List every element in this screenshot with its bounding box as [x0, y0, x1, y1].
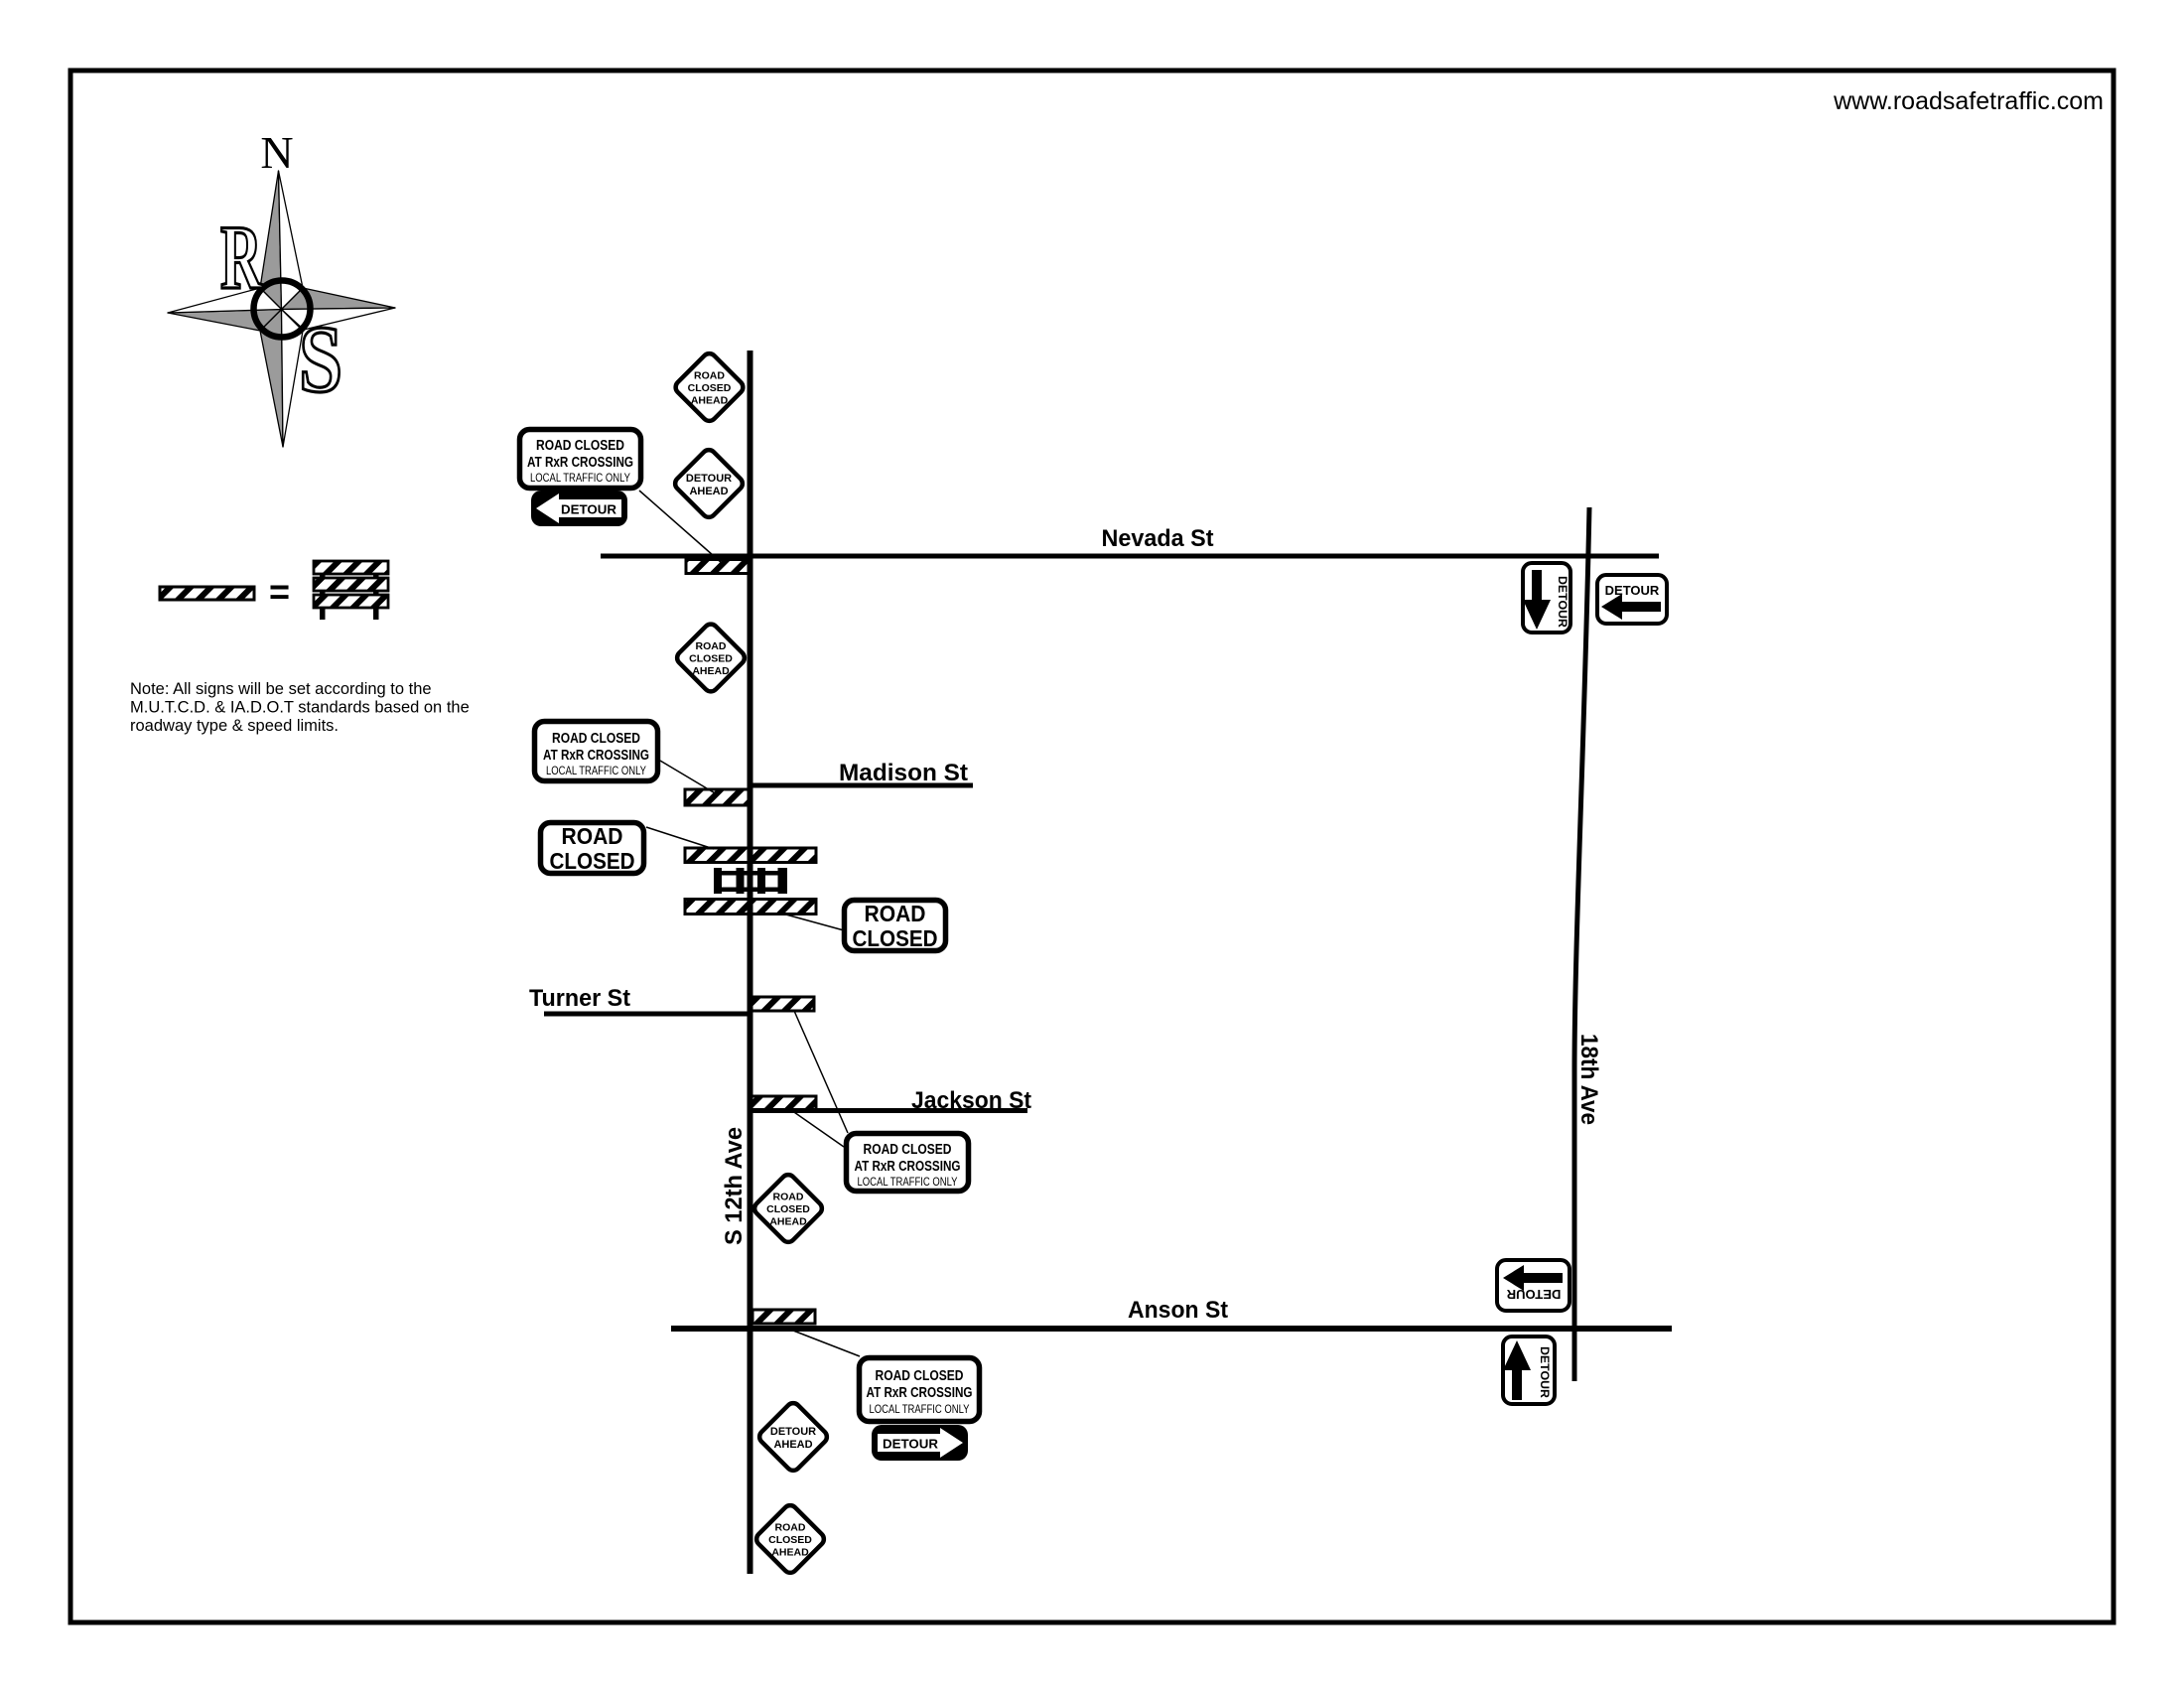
- svg-text:N: N: [260, 127, 293, 178]
- svg-text:ROAD: ROAD: [696, 640, 727, 652]
- svg-text:CLOSED: CLOSED: [853, 925, 938, 951]
- svg-text:=: =: [269, 571, 290, 612]
- svg-text:LOCAL TRAFFIC ONLY: LOCAL TRAFFIC ONLY: [870, 1404, 970, 1416]
- svg-text:ROAD CLOSED: ROAD CLOSED: [536, 438, 624, 454]
- svg-text:ROAD: ROAD: [694, 370, 725, 382]
- svg-text:CLOSED: CLOSED: [550, 848, 635, 874]
- svg-text:AHEAD: AHEAD: [689, 486, 728, 497]
- svg-text:roadway type & speed limits.: roadway type & speed limits.: [130, 717, 339, 735]
- svg-text:S 12th Ave: S 12th Ave: [721, 1127, 748, 1245]
- svg-text:Note: All signs will be set ac: Note: All signs will be set according to…: [130, 680, 432, 698]
- svg-text:LOCAL TRAFFIC ONLY: LOCAL TRAFFIC ONLY: [546, 766, 646, 777]
- svg-text:AHEAD: AHEAD: [691, 395, 729, 407]
- svg-text:CLOSED: CLOSED: [766, 1203, 810, 1215]
- svg-text:AT RxR CROSSING: AT RxR CROSSING: [527, 455, 633, 471]
- svg-text:LOCAL TRAFFIC ONLY: LOCAL TRAFFIC ONLY: [858, 1177, 958, 1189]
- svg-text:ROAD: ROAD: [773, 1192, 804, 1203]
- svg-text:AHEAD: AHEAD: [769, 1216, 807, 1228]
- svg-text:AT RxR CROSSING: AT RxR CROSSING: [867, 1385, 973, 1401]
- svg-text:ROAD: ROAD: [775, 1522, 806, 1534]
- svg-text:DETOUR: DETOUR: [770, 1426, 816, 1438]
- svg-text:DETOUR: DETOUR: [561, 502, 617, 517]
- svg-text:R: R: [220, 207, 263, 308]
- svg-text:DETOUR: DETOUR: [686, 473, 732, 485]
- svg-text:DETOUR: DETOUR: [883, 1437, 939, 1452]
- svg-text:ROAD CLOSED: ROAD CLOSED: [864, 1142, 952, 1158]
- svg-text:Turner St: Turner St: [529, 985, 630, 1012]
- svg-text:LOCAL TRAFFIC ONLY: LOCAL TRAFFIC ONLY: [530, 473, 630, 485]
- svg-text:Madison St: Madison St: [839, 760, 968, 786]
- svg-text:AHEAD: AHEAD: [692, 665, 730, 677]
- svg-text:AHEAD: AHEAD: [773, 1439, 812, 1451]
- svg-text:ROAD CLOSED: ROAD CLOSED: [552, 731, 640, 747]
- svg-text:CLOSED: CLOSED: [689, 653, 733, 665]
- svg-text:Jackson St: Jackson St: [911, 1087, 1031, 1114]
- svg-text:www.roadsafetraffic.com: www.roadsafetraffic.com: [1833, 87, 2104, 115]
- svg-text:M.U.T.C.D. & IA.D.O.T standard: M.U.T.C.D. & IA.D.O.T standards based on…: [130, 699, 470, 717]
- svg-text:S: S: [299, 306, 342, 412]
- svg-text:CLOSED: CLOSED: [688, 382, 732, 394]
- svg-text:AT RxR CROSSING: AT RxR CROSSING: [543, 748, 649, 764]
- svg-text:DETOUR: DETOUR: [1538, 1346, 1550, 1399]
- svg-text:AHEAD: AHEAD: [771, 1547, 809, 1559]
- svg-text:ROAD: ROAD: [865, 901, 926, 926]
- svg-text:AT RxR CROSSING: AT RxR CROSSING: [855, 1159, 961, 1175]
- svg-text:Anson St: Anson St: [1128, 1297, 1228, 1324]
- svg-text:ROAD CLOSED: ROAD CLOSED: [876, 1368, 964, 1384]
- svg-text:DETOUR: DETOUR: [1506, 1287, 1561, 1302]
- svg-text:DETOUR: DETOUR: [1605, 583, 1660, 598]
- svg-text:CLOSED: CLOSED: [768, 1534, 812, 1546]
- svg-text:18th Ave: 18th Ave: [1575, 1034, 1602, 1125]
- svg-text:DETOUR: DETOUR: [1556, 576, 1568, 629]
- svg-text:ROAD: ROAD: [562, 823, 623, 849]
- svg-text:Nevada St: Nevada St: [1102, 525, 1214, 552]
